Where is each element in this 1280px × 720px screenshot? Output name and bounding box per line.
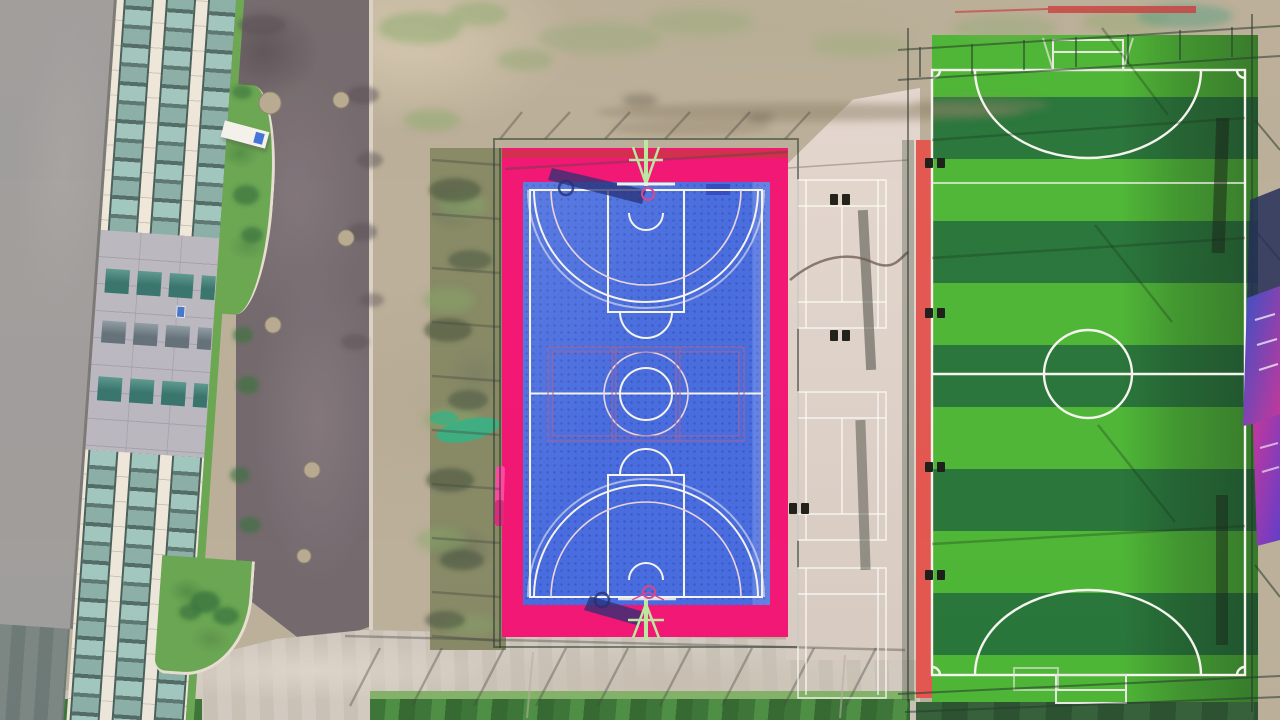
window — [200, 275, 216, 300]
facade-upper — [101, 0, 238, 238]
window — [136, 271, 162, 297]
facade-mid-panels — [85, 230, 219, 458]
basketball-court-surface — [523, 182, 770, 605]
window — [197, 327, 213, 350]
lawn — [154, 555, 255, 679]
window — [193, 383, 209, 408]
glass-strip — [108, 453, 160, 720]
window — [133, 323, 158, 347]
fence-shade — [932, 35, 1258, 703]
building — [0, 0, 288, 720]
building-glass-roof — [0, 620, 70, 720]
repaired-tile-patch — [706, 184, 730, 195]
glass-strip — [150, 0, 198, 236]
window — [97, 376, 123, 402]
hedge — [370, 699, 910, 720]
window — [168, 273, 194, 299]
entrance-sign — [253, 132, 265, 145]
shaded-grass-strip — [916, 702, 1258, 720]
road-curb — [369, 0, 373, 630]
scrub-strip — [430, 148, 506, 650]
red-runner-strip — [916, 140, 932, 698]
facade-sign — [176, 306, 186, 319]
badminton-concrete-strip — [786, 88, 920, 660]
apron-red-edge — [502, 150, 788, 158]
aerial-photo-canvas — [0, 0, 1280, 720]
window — [129, 378, 155, 404]
window — [165, 325, 190, 349]
window — [101, 320, 126, 344]
glass-strip — [108, 0, 156, 233]
window — [161, 381, 187, 407]
football-pitch — [916, 35, 1258, 703]
window — [104, 269, 130, 295]
